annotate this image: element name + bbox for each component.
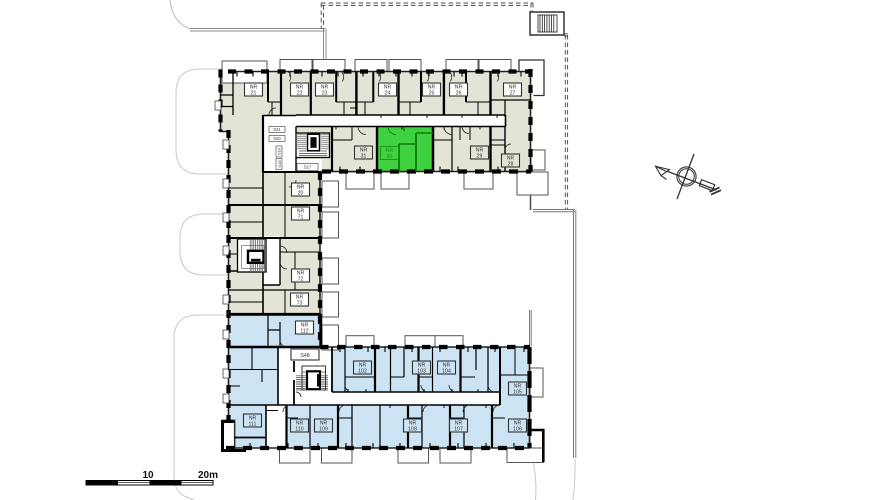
svg-text:S19: S19	[277, 147, 282, 155]
svg-text:22: 22	[297, 90, 303, 96]
svg-text:105: 105	[513, 389, 522, 395]
svg-text:S17: S17	[304, 165, 312, 170]
svg-text:10: 10	[142, 470, 154, 481]
svg-text:71: 71	[298, 214, 304, 220]
svg-text:29: 29	[477, 153, 483, 159]
svg-text:72: 72	[298, 276, 304, 282]
svg-text:24: 24	[385, 90, 391, 96]
svg-text:26: 26	[456, 90, 462, 96]
svg-text:31: 31	[361, 153, 367, 159]
svg-text:20m: 20m	[198, 470, 218, 481]
svg-text:110: 110	[295, 426, 303, 432]
svg-text:106: 106	[513, 426, 522, 432]
svg-text:109: 109	[319, 426, 328, 432]
svg-text:S20: S20	[273, 136, 281, 141]
svg-text:28: 28	[508, 161, 514, 167]
svg-text:112: 112	[300, 328, 308, 334]
svg-text:25: 25	[429, 90, 435, 96]
svg-text:103: 103	[417, 368, 426, 374]
svg-text:102: 102	[358, 368, 367, 374]
svg-text:107: 107	[454, 426, 463, 432]
svg-text:30: 30	[387, 154, 393, 160]
svg-text:27: 27	[510, 90, 516, 96]
svg-text:21: 21	[251, 90, 257, 96]
svg-text:108: 108	[408, 426, 417, 432]
svg-text:111: 111	[249, 421, 257, 427]
svg-text:S18: S18	[277, 160, 282, 168]
svg-text:S21: S21	[273, 127, 281, 132]
svg-text:73: 73	[297, 300, 303, 306]
svg-text:104: 104	[442, 368, 451, 374]
svg-text:20: 20	[298, 190, 304, 196]
svg-text:23: 23	[322, 90, 328, 96]
svg-text:S48: S48	[300, 353, 309, 359]
